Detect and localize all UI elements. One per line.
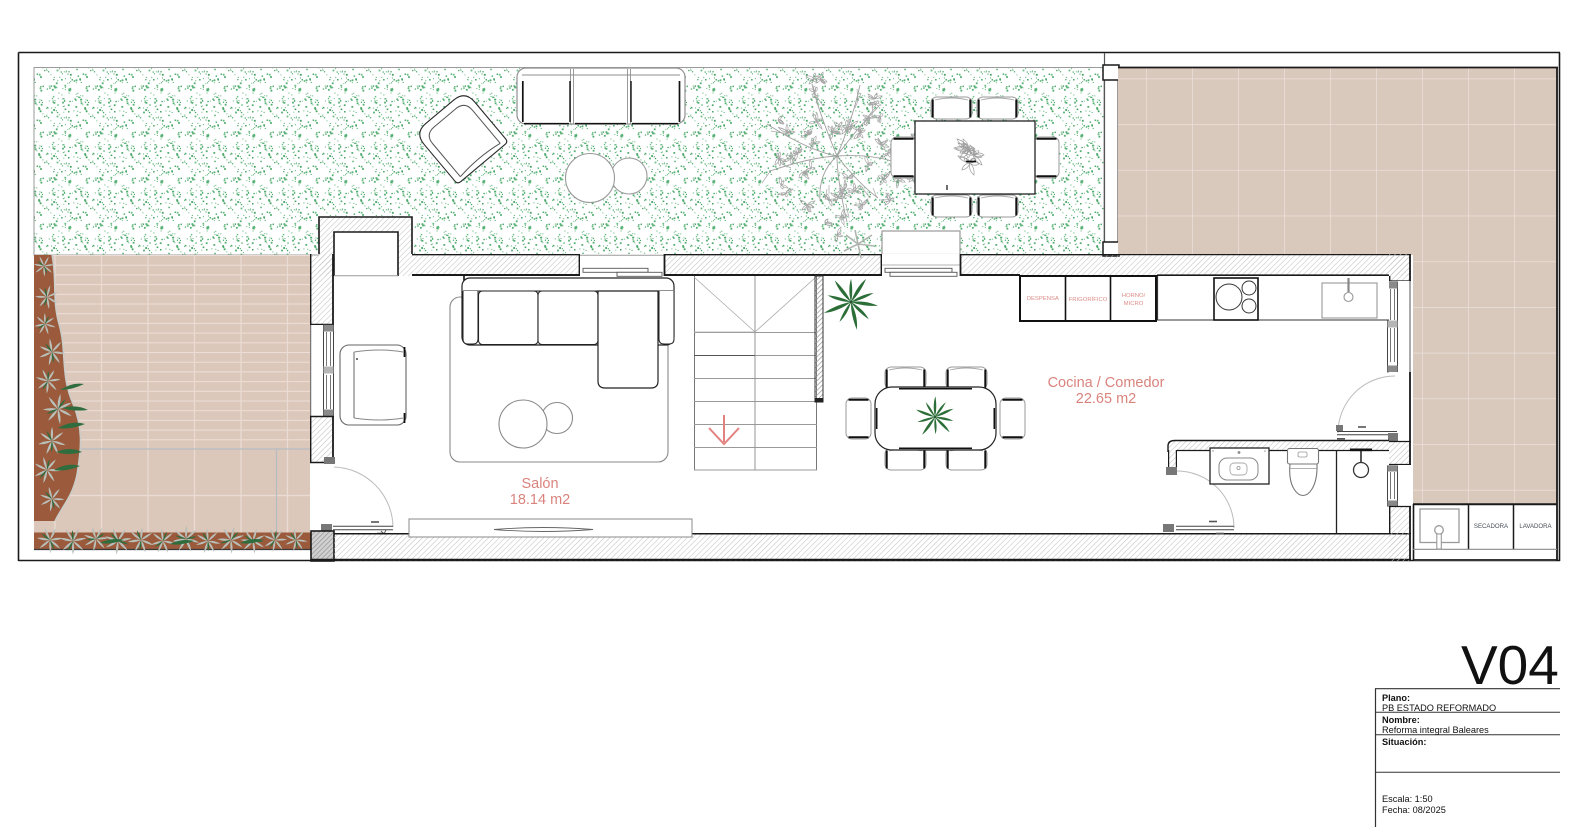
svg-text:18.14 m2: 18.14 m2: [510, 492, 570, 508]
svg-text:MICRO: MICRO: [1124, 301, 1144, 307]
svg-text:LAVADORA: LAVADORA: [1519, 523, 1552, 530]
svg-text:Nombre:: Nombre:: [1382, 715, 1420, 725]
svg-text:Plano:: Plano:: [1382, 693, 1410, 703]
svg-text:Reforma integral Baleares: Reforma integral Baleares: [1382, 725, 1489, 735]
svg-text:HORNO/: HORNO/: [1122, 293, 1146, 299]
svg-text:Escala: 1:50: Escala: 1:50: [1382, 794, 1433, 804]
svg-text:SECADORA: SECADORA: [1474, 523, 1509, 530]
svg-text:V04: V04: [1461, 634, 1559, 696]
svg-text:22.65 m2: 22.65 m2: [1076, 391, 1136, 407]
svg-text:Situación:: Situación:: [1382, 737, 1426, 747]
svg-text:PB ESTADO REFORMADO: PB ESTADO REFORMADO: [1382, 703, 1496, 713]
svg-text:Fecha: 08/2025: Fecha: 08/2025: [1382, 805, 1446, 815]
svg-text:Cocina / Comedor: Cocina / Comedor: [1048, 375, 1165, 391]
svg-text:FRIGORÍFICO: FRIGORÍFICO: [1069, 296, 1108, 303]
svg-text:DESPENSA: DESPENSA: [1027, 296, 1059, 302]
svg-text:Salón: Salón: [521, 476, 558, 492]
